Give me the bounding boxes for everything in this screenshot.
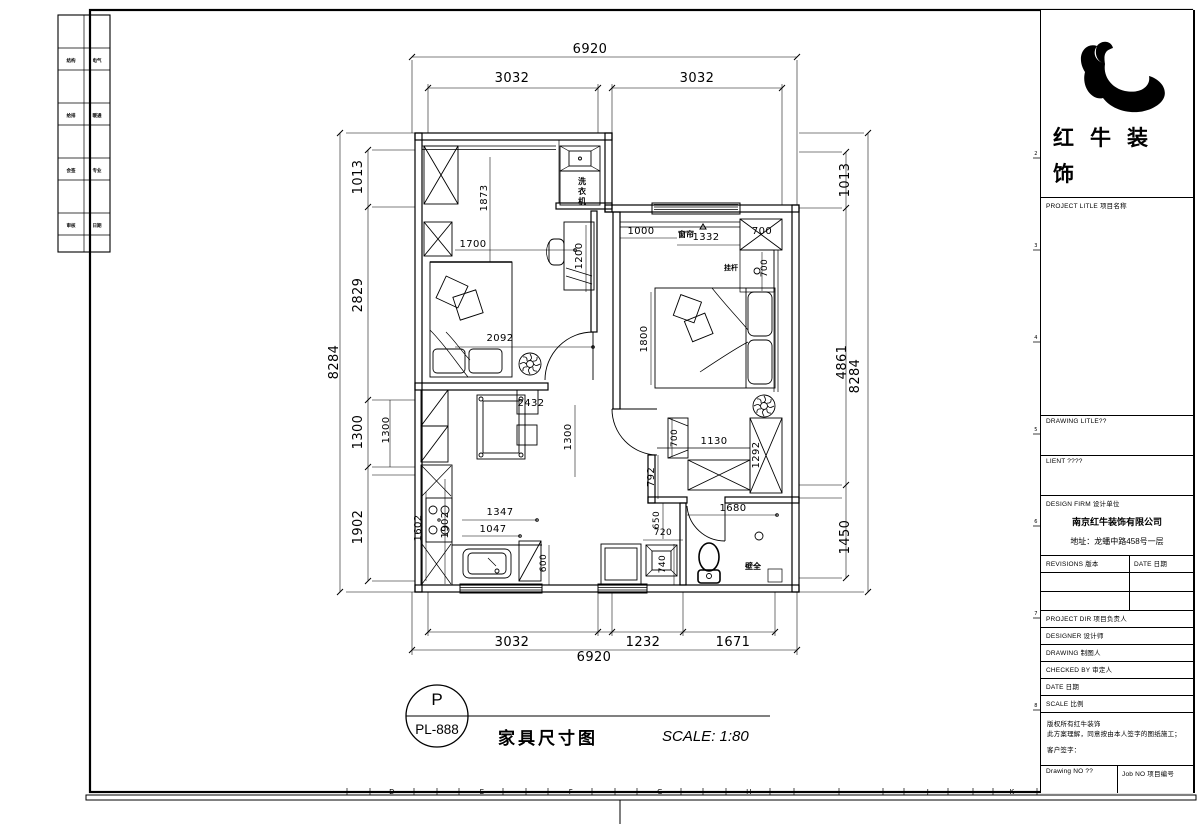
- plant-symbol: [753, 395, 775, 417]
- frame-number: 3: [1034, 243, 1038, 249]
- sheet-frame: [86, 10, 1196, 824]
- pillow: [748, 292, 772, 336]
- dim-label: 1347: [486, 507, 513, 518]
- room-label: 洗: [578, 176, 586, 186]
- dim-label: 2092: [486, 333, 513, 344]
- room-label: 窗帘: [678, 229, 694, 239]
- dim-label: 650: [652, 511, 662, 529]
- dim-label: 2829: [351, 278, 366, 313]
- dim-label: 1450: [838, 520, 853, 555]
- frame-number: 5: [1034, 427, 1038, 433]
- dim-label: 1300: [381, 416, 392, 443]
- date-col-label: DATE 日期: [1134, 558, 1167, 568]
- dim-label: 1332: [692, 232, 719, 243]
- signoff-strip: [58, 15, 110, 252]
- frame-number: 7: [1034, 611, 1038, 617]
- floor-plan-canvas: 6920303230321013282913001902828413001602…: [0, 0, 1200, 824]
- dim-label: 1902: [351, 510, 366, 545]
- ruler-letter: F: [569, 788, 573, 796]
- project-title-label: PROJECT LITLE 项目名称: [1046, 200, 1127, 210]
- floor-drain: [755, 532, 763, 540]
- signoff-cell: 会签: [67, 167, 76, 174]
- dim-label: 1013: [351, 160, 366, 195]
- dim-label: 1300: [351, 415, 366, 450]
- pillow: [748, 340, 772, 384]
- dim-label: 740: [658, 555, 668, 573]
- drawing-title-label: DRAWING LITLE??: [1046, 418, 1107, 425]
- drawing-title: 家具尺寸图: [498, 724, 598, 749]
- curtain-symbol: [700, 224, 706, 229]
- checked-by-label: CHECKED BY 审定人: [1046, 664, 1112, 674]
- signoff-cell: 专业: [93, 167, 102, 174]
- signature-label: 客户签字：: [1047, 744, 1081, 754]
- ruler-letter: J: [926, 788, 929, 796]
- ruler-letter: H: [746, 788, 752, 796]
- dim-label: 6920: [573, 42, 608, 57]
- dim-label: 1130: [700, 436, 727, 447]
- windows: [422, 146, 740, 593]
- frame-number: 6: [1034, 519, 1038, 525]
- client-label: LIENT ????: [1046, 458, 1083, 465]
- wall-niche: [768, 569, 782, 582]
- chair: [549, 239, 564, 265]
- ruler-letter: E: [480, 788, 485, 796]
- signoff-cell: 给排: [67, 112, 76, 119]
- room-label: 机: [578, 196, 586, 206]
- dim-label: 792: [646, 467, 657, 487]
- signoff-cell: 审核: [67, 222, 76, 229]
- dim-label: 1013: [838, 163, 853, 198]
- walls: [415, 133, 799, 592]
- dim-label: 3032: [495, 635, 530, 650]
- dim-label: 2432: [517, 398, 544, 409]
- toilet: [699, 543, 719, 571]
- signoff-cell: 结构: [67, 57, 76, 64]
- frame-number: 2: [1034, 151, 1038, 157]
- dim-label: 3032: [495, 71, 530, 86]
- bed-1: [430, 262, 512, 377]
- drawing-sheet: 6920303230321013282913001902828413001602…: [0, 0, 1200, 824]
- drawing-by-label: DRAWING 制图人: [1046, 647, 1101, 657]
- dim-label: 1200: [574, 242, 585, 269]
- frame-number: 4: [1034, 335, 1038, 341]
- room-label: 衣: [578, 186, 586, 196]
- dim-label: 3032: [680, 71, 715, 86]
- design-firm-label: DESIGN FIRM 设计单位: [1046, 498, 1120, 508]
- scale-label: SCALE 比例: [1046, 698, 1084, 708]
- dim-label: 8284: [848, 359, 863, 394]
- ruler-letter: D: [389, 788, 395, 796]
- dimension-lines: [337, 54, 871, 655]
- stool: [517, 425, 537, 445]
- dim-label: 1232: [626, 635, 661, 650]
- plant-symbol: [519, 353, 541, 375]
- job-no-label: Job NO 项目编号: [1122, 768, 1174, 778]
- dim-label: 1873: [479, 184, 490, 211]
- dim-label: 1300: [563, 423, 574, 450]
- dim-label: 1700: [459, 239, 486, 250]
- dim-label: 6920: [577, 650, 612, 665]
- dim-label: 1602: [413, 514, 424, 541]
- signoff-cell: 暖通: [93, 112, 102, 119]
- drawing-scale: SCALE: 1:80: [662, 728, 749, 745]
- company-address: 地址：龙蟠中路458号一层: [1041, 536, 1193, 547]
- brand-name: 红牛装饰: [1053, 120, 1191, 192]
- room-label: 挂杆: [724, 263, 738, 272]
- redbull-logo: [1067, 38, 1167, 113]
- copyright-line2: 此方案理解，同意按由本人签字的图纸施工；: [1047, 728, 1181, 738]
- project-dir-label: PROJECT DIR 项目负责人: [1046, 613, 1127, 623]
- dim-label: 1047: [479, 524, 506, 535]
- ruler-letter: G: [657, 788, 663, 796]
- bathroom: [698, 532, 782, 583]
- signoff-cell: 日期: [93, 222, 102, 229]
- bed-2: [655, 288, 775, 388]
- detail-circle-number: PL-888: [406, 722, 468, 737]
- ceiling-lamp: [560, 146, 600, 171]
- room-label: 壁全: [745, 561, 762, 571]
- revisions-label: REVISIONS 版本: [1046, 558, 1099, 568]
- dim-label: 1800: [639, 325, 650, 352]
- dim-label: 1671: [716, 635, 751, 650]
- detail-circle-letter: P: [406, 690, 468, 710]
- ruler-letter: K: [1010, 788, 1015, 796]
- dim-label: 700: [760, 259, 770, 277]
- dim-label: 1000: [627, 226, 654, 237]
- date-label: DATE 日期: [1046, 681, 1079, 691]
- dim-label: 1902: [440, 511, 451, 538]
- company-name: 南京红牛装饰有限公司: [1041, 515, 1193, 528]
- dim-label: 1292: [751, 441, 762, 468]
- dim-label: 700: [752, 226, 772, 237]
- dim-label: 1680: [719, 503, 746, 514]
- pillow: [469, 349, 502, 373]
- title-block: 红牛装饰 PROJECT LITLE 项目名称 DRAWING LITLE?? …: [1040, 10, 1195, 793]
- dim-label: 600: [539, 554, 549, 572]
- dim-label: 8284: [327, 345, 342, 380]
- frame-number: 8: [1034, 703, 1038, 709]
- dim-label: 720: [654, 528, 672, 538]
- signoff-cell: 电气: [93, 57, 102, 64]
- fridge: [601, 544, 641, 584]
- designer-label: DESIGNER 设计师: [1046, 630, 1104, 640]
- copyright-line1: 版权所有红牛装饰: [1047, 718, 1101, 728]
- dim-label: 700: [670, 429, 680, 447]
- drawing-no-label: Drawing NO ??: [1046, 768, 1093, 775]
